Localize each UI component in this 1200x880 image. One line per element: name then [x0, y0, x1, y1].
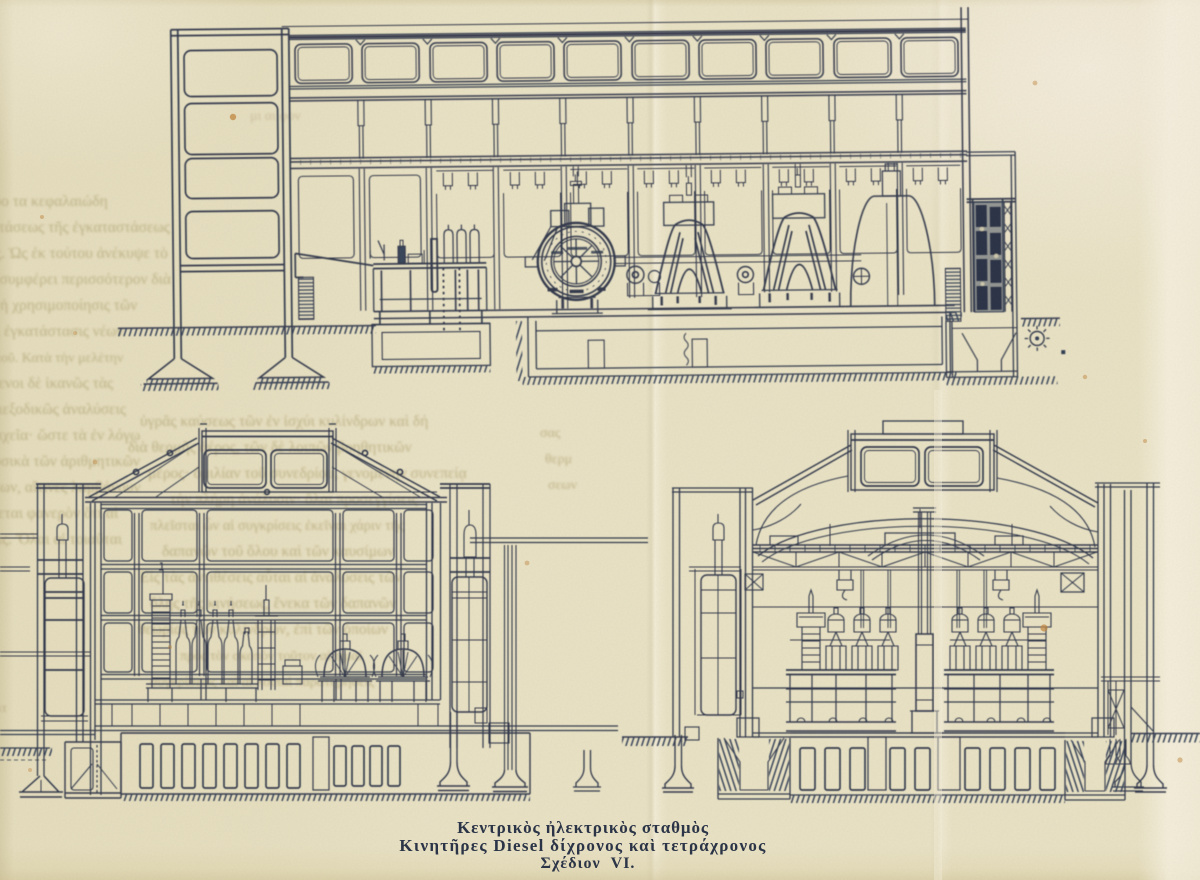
svg-text:Σχέδιον VI.: Σχέδιον VI.	[541, 855, 636, 872]
svg-text:Κινητῆρες Diesel δίχρονος καὶ: Κινητῆρες Diesel δίχρονος καὶ τετράχρονο…	[399, 836, 766, 855]
svg-text:Κεντρικὸς ἠλεκτρικὸς σταθμὸς: Κεντρικὸς ἠλεκτρικὸς σταθμὸς	[457, 818, 709, 837]
